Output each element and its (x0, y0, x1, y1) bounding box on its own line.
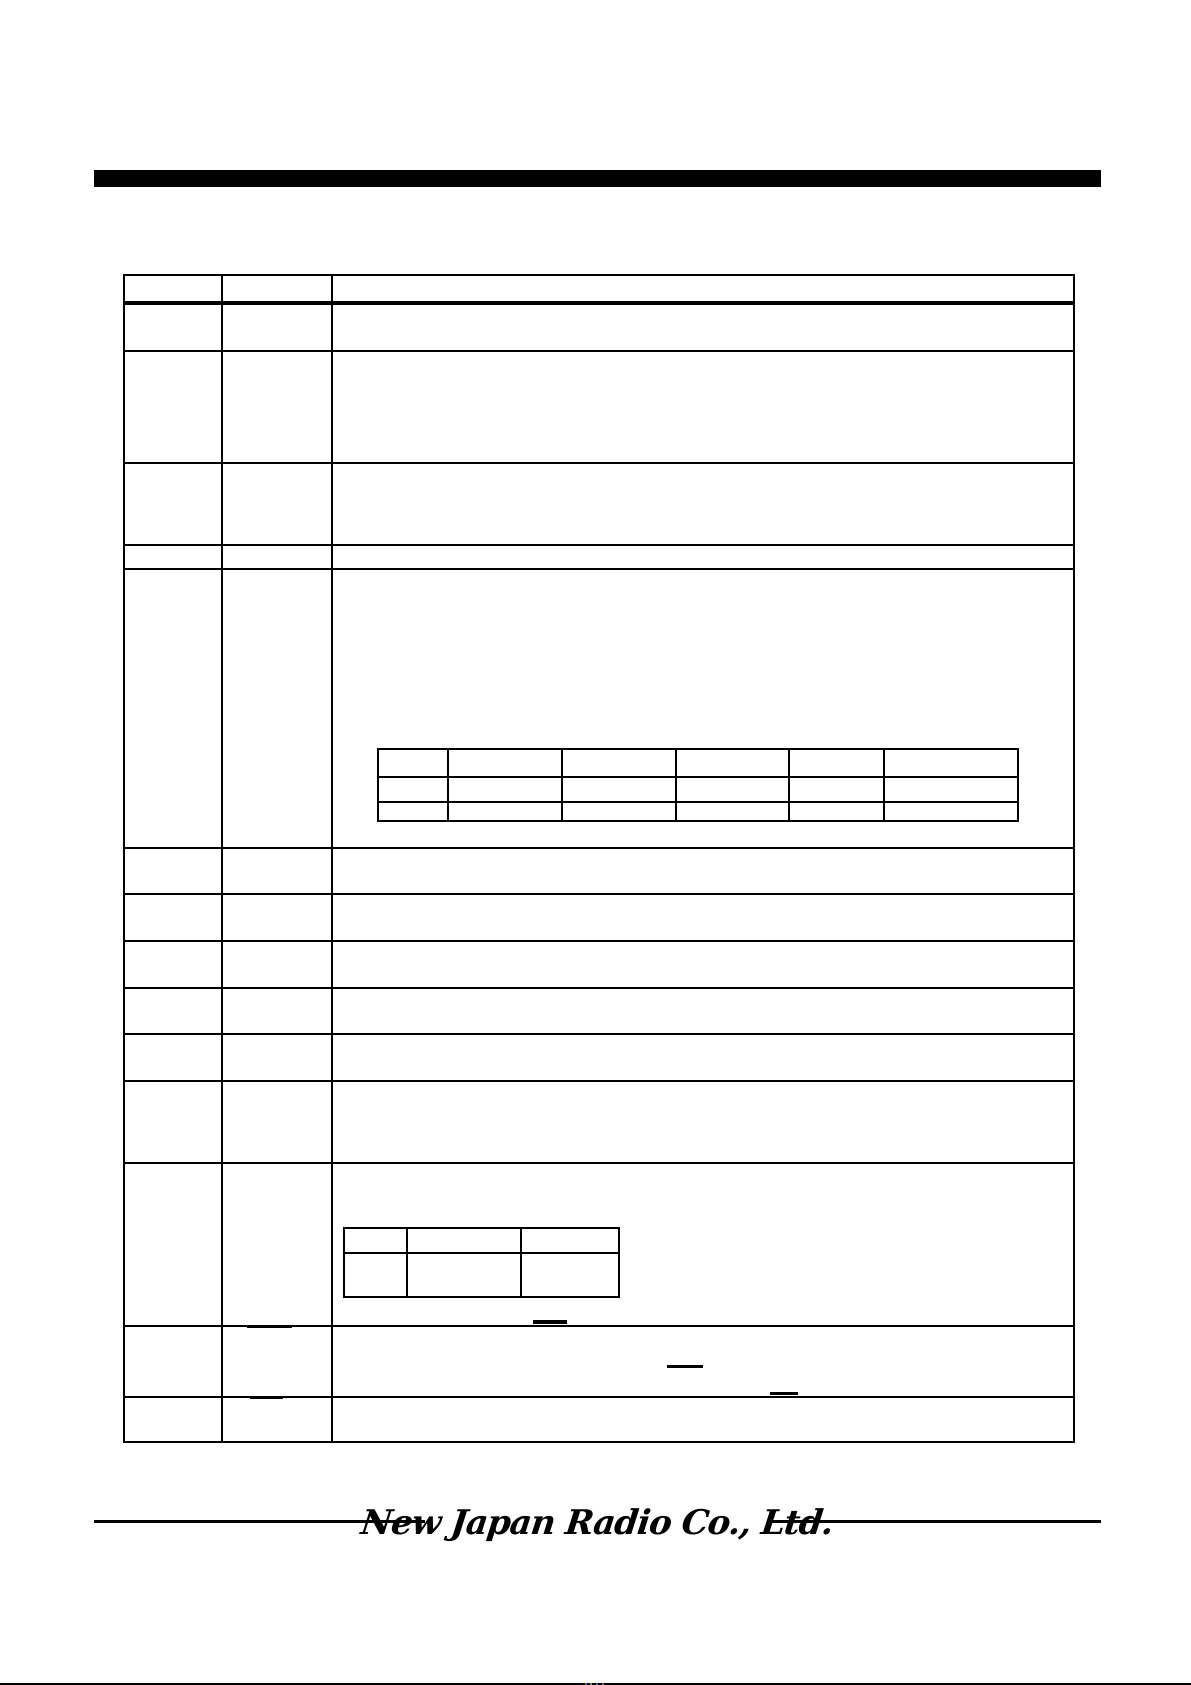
inner-table-1-row-divider (379, 776, 1017, 778)
spec-table-row-divider (125, 544, 1073, 546)
spec-table-row-divider (125, 987, 1073, 989)
inner-table-2 (343, 1227, 620, 1298)
inner-table-1-column-divider (561, 750, 563, 820)
overline-mark (667, 1365, 703, 1368)
inner-table-1-column-divider (883, 750, 885, 820)
inner-table-1-column-divider (675, 750, 677, 820)
spec-table-row-divider (125, 1033, 1073, 1035)
spec-table-row-divider (125, 350, 1073, 352)
inner-table-1-column-divider (788, 750, 790, 820)
spec-table-row-divider (125, 893, 1073, 895)
spec-table-header-bold-line (125, 301, 1073, 305)
spec-table-column-divider (331, 276, 333, 1441)
overline-mark (770, 1392, 798, 1395)
spec-table-row-divider (125, 568, 1073, 570)
spec-table-row-divider (125, 940, 1073, 942)
inner-table-2-row-divider (345, 1252, 618, 1254)
spec-table-row-divider (125, 462, 1073, 464)
inner-table-2-column-divider (406, 1229, 408, 1296)
inner-table-1-row-divider (379, 801, 1017, 803)
overline-mark (247, 1325, 292, 1328)
inner-table-1 (377, 748, 1019, 822)
overline-mark (533, 1320, 567, 1324)
spec-table-row-divider (125, 847, 1073, 849)
company-logo-text: New Japan Radio Co., Ltd. (359, 1503, 835, 1543)
footer-rule (770, 1520, 1101, 1523)
datasheet-page: New Japan Radio Co., Ltd. (0, 0, 1191, 1685)
inner-table-1-column-divider (447, 750, 449, 820)
section-title-bar (94, 170, 1101, 187)
spec-table-column-divider (221, 276, 223, 1441)
overline-mark (250, 1396, 283, 1399)
spec-table-row-divider (125, 1080, 1073, 1082)
inner-table-2-column-divider (520, 1229, 522, 1296)
spec-table-row-divider (125, 1162, 1073, 1164)
footer-rule (94, 1520, 425, 1523)
